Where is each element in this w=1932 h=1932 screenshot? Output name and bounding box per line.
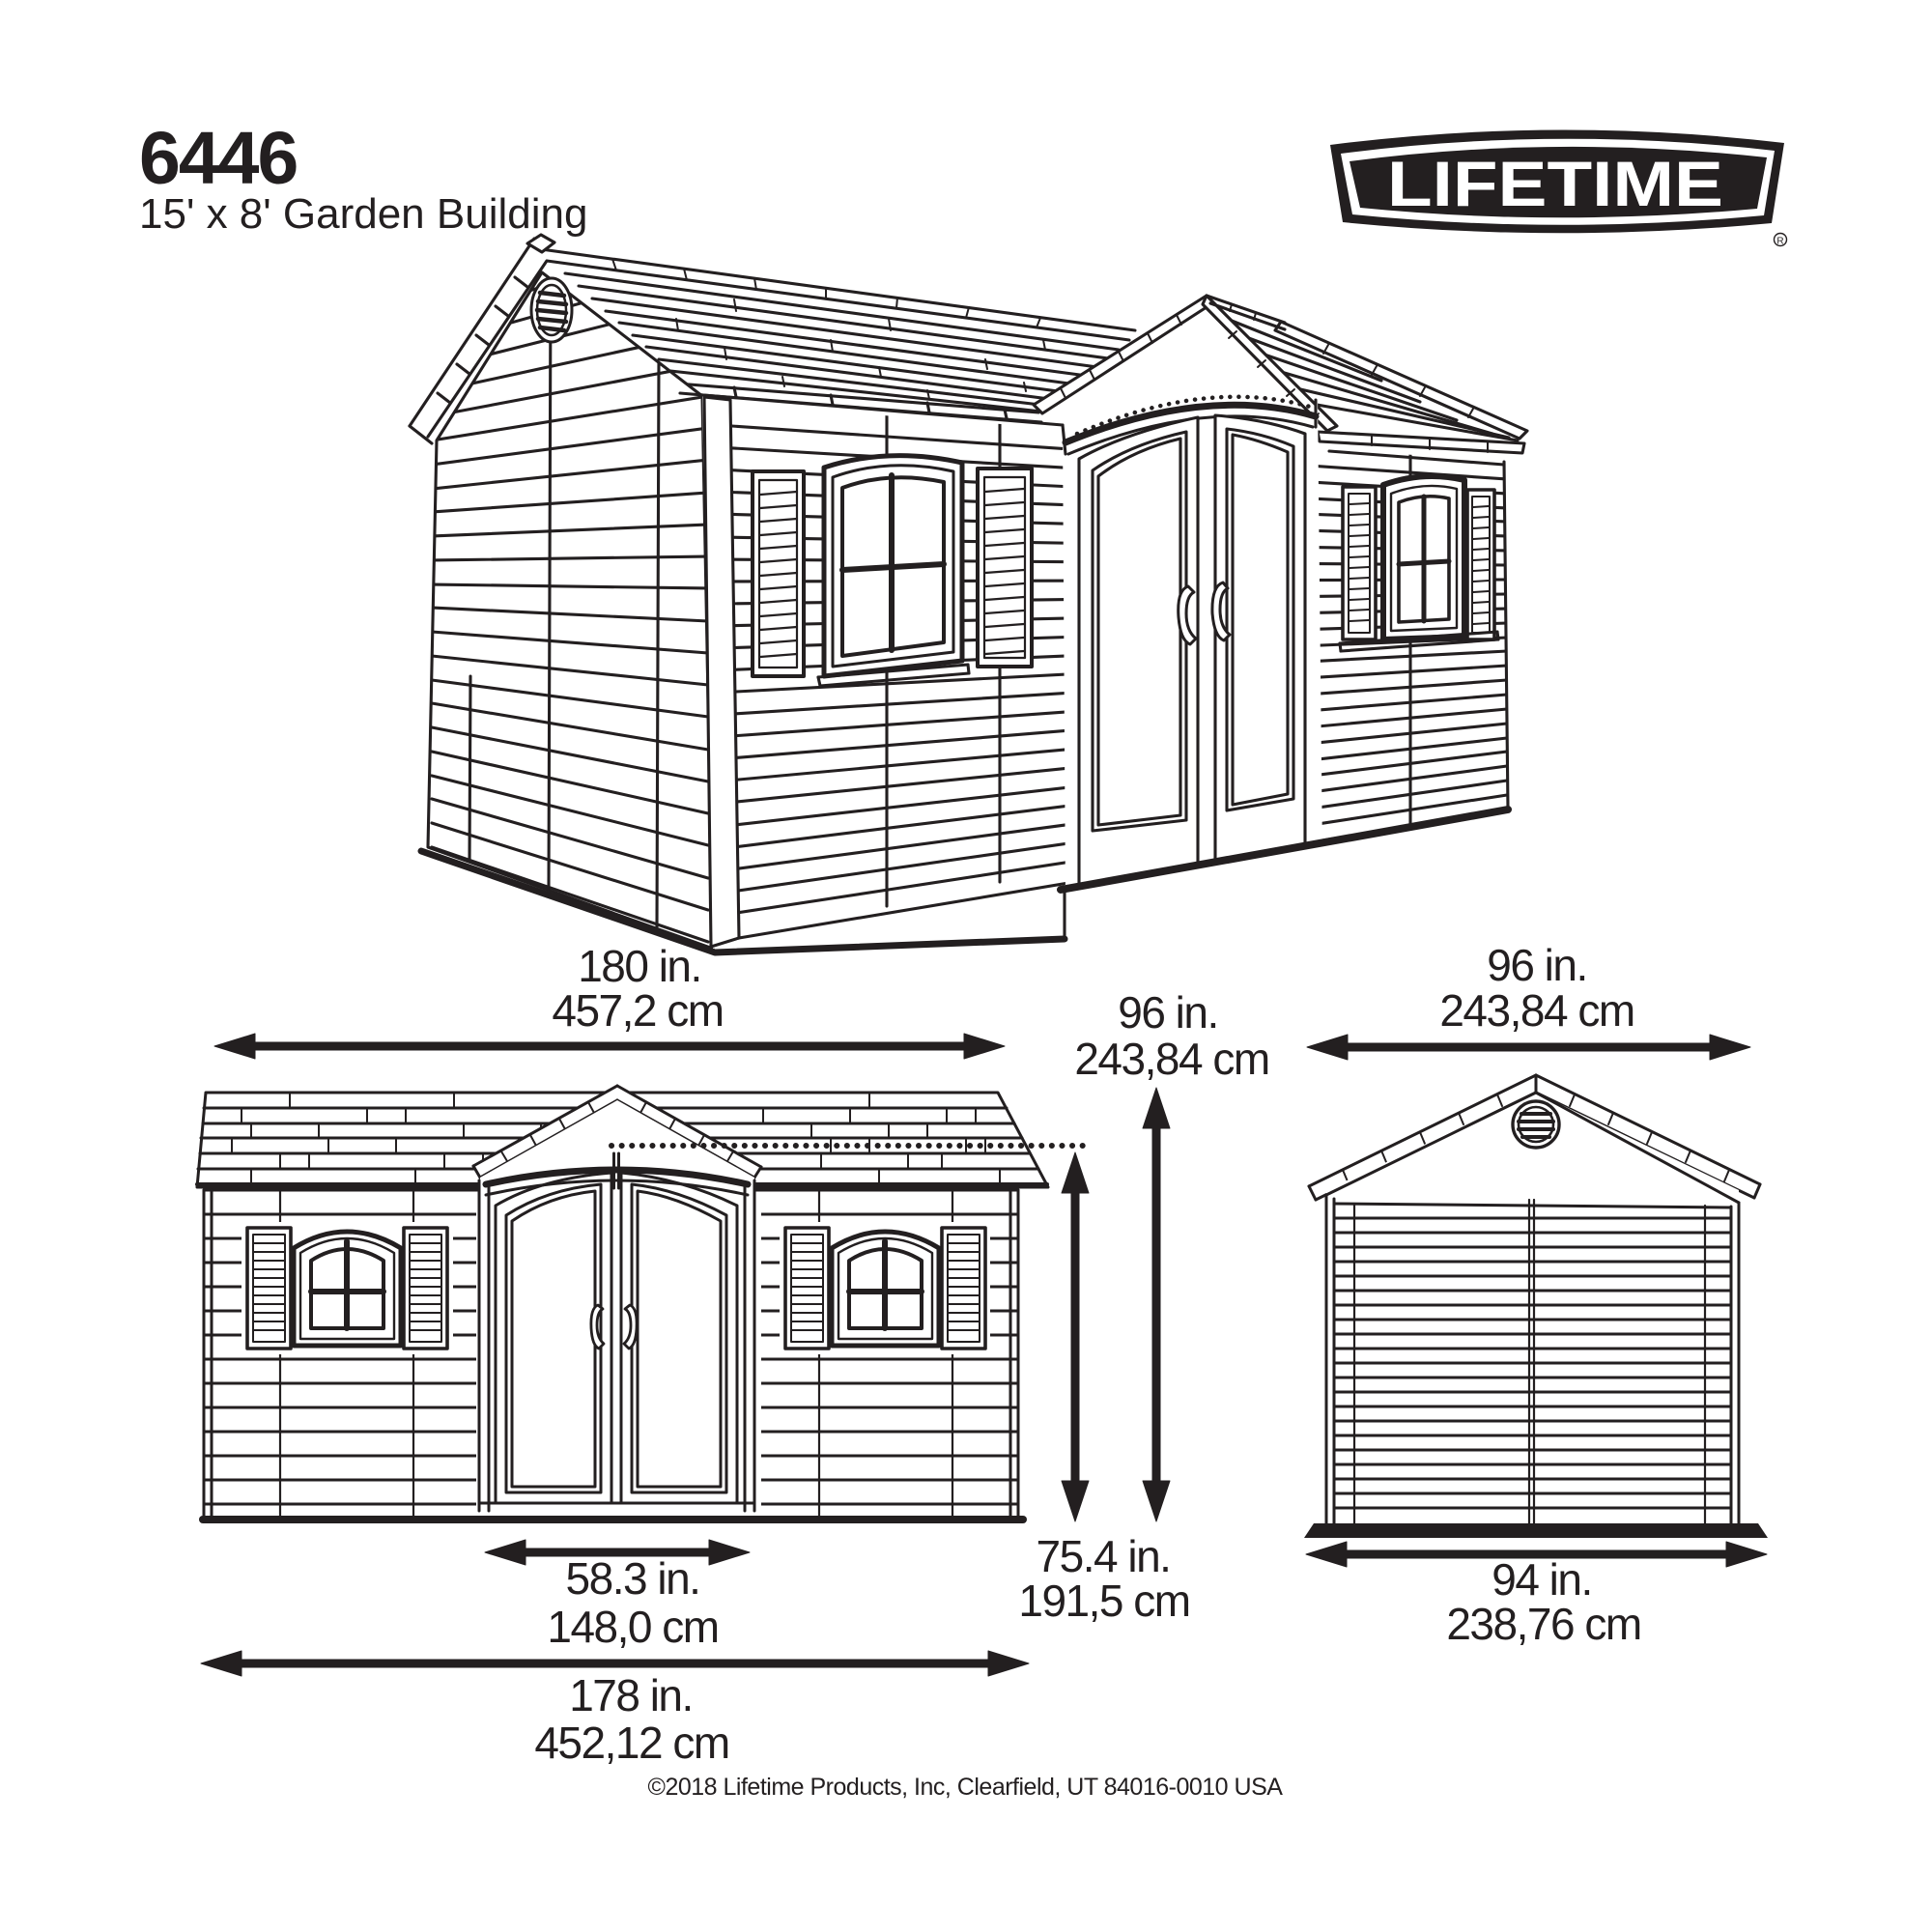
svg-text:6446: 6446 bbox=[139, 117, 297, 200]
svg-text:191,5 cm: 191,5 cm bbox=[1018, 1576, 1189, 1626]
svg-text:R: R bbox=[1776, 237, 1783, 247]
svg-text:58.3 in.: 58.3 in. bbox=[566, 1553, 700, 1604]
svg-text:180 in.: 180 in. bbox=[578, 941, 701, 991]
svg-text:452,12 cm: 452,12 cm bbox=[534, 1718, 728, 1768]
svg-text:148,0 cm: 148,0 cm bbox=[547, 1602, 718, 1652]
svg-text:96 in.: 96 in. bbox=[1487, 940, 1587, 990]
svg-text:94 in.: 94 in. bbox=[1492, 1554, 1592, 1605]
svg-text:243,84 cm: 243,84 cm bbox=[1074, 1034, 1268, 1084]
svg-text:238,76 cm: 238,76 cm bbox=[1446, 1599, 1640, 1649]
svg-text:243,84 cm: 243,84 cm bbox=[1439, 985, 1634, 1036]
svg-text:©2018 Lifetime Products, Inc,: ©2018 Lifetime Products, Inc, Clearfield… bbox=[648, 1774, 1284, 1801]
svg-text:15' x 8' Garden Building: 15' x 8' Garden Building bbox=[139, 190, 587, 238]
svg-text:LIFETIME: LIFETIME bbox=[1387, 148, 1723, 219]
svg-text:75.4 in.: 75.4 in. bbox=[1037, 1531, 1171, 1581]
svg-text:178 in.: 178 in. bbox=[569, 1670, 693, 1720]
svg-text:457,2 cm: 457,2 cm bbox=[552, 985, 723, 1036]
svg-text:96 in.: 96 in. bbox=[1118, 987, 1218, 1037]
